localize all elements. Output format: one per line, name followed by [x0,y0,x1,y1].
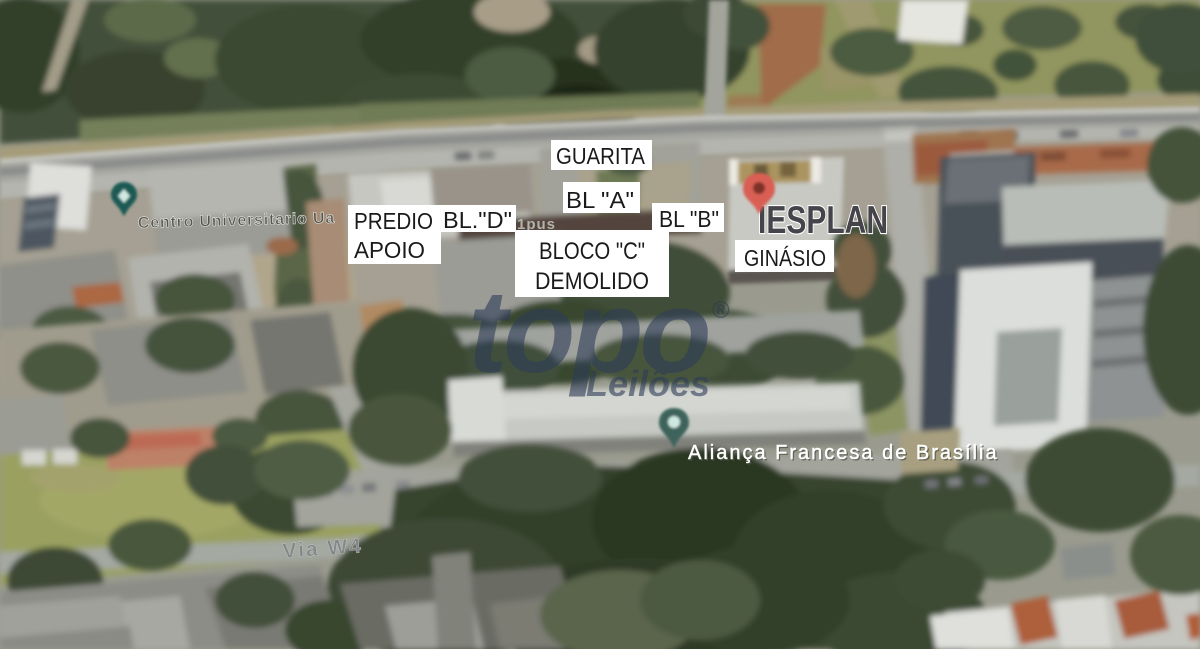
svg-text:Aliança Francesa de Brasília: Aliança Francesa de Brasília [688,442,999,464]
svg-text:Leilões: Leilões [586,363,710,404]
svg-text:®: ® [712,297,730,324]
svg-text:GINÁSIO: GINÁSIO [744,245,826,271]
svg-text:BL."D": BL."D" [443,207,512,233]
svg-text:BLOCO "C": BLOCO "C" [539,238,645,265]
svg-text:APOIO: APOIO [354,237,425,263]
svg-text:GUARITA: GUARITA [556,143,646,169]
svg-text:BL "A": BL "A" [566,187,634,213]
svg-text:BL "B": BL "B" [659,206,719,232]
svg-text:DEMOLIDO: DEMOLIDO [535,268,649,295]
svg-text:PREDIO: PREDIO [354,208,433,234]
svg-text:IESPLAN: IESPLAN [758,199,888,242]
